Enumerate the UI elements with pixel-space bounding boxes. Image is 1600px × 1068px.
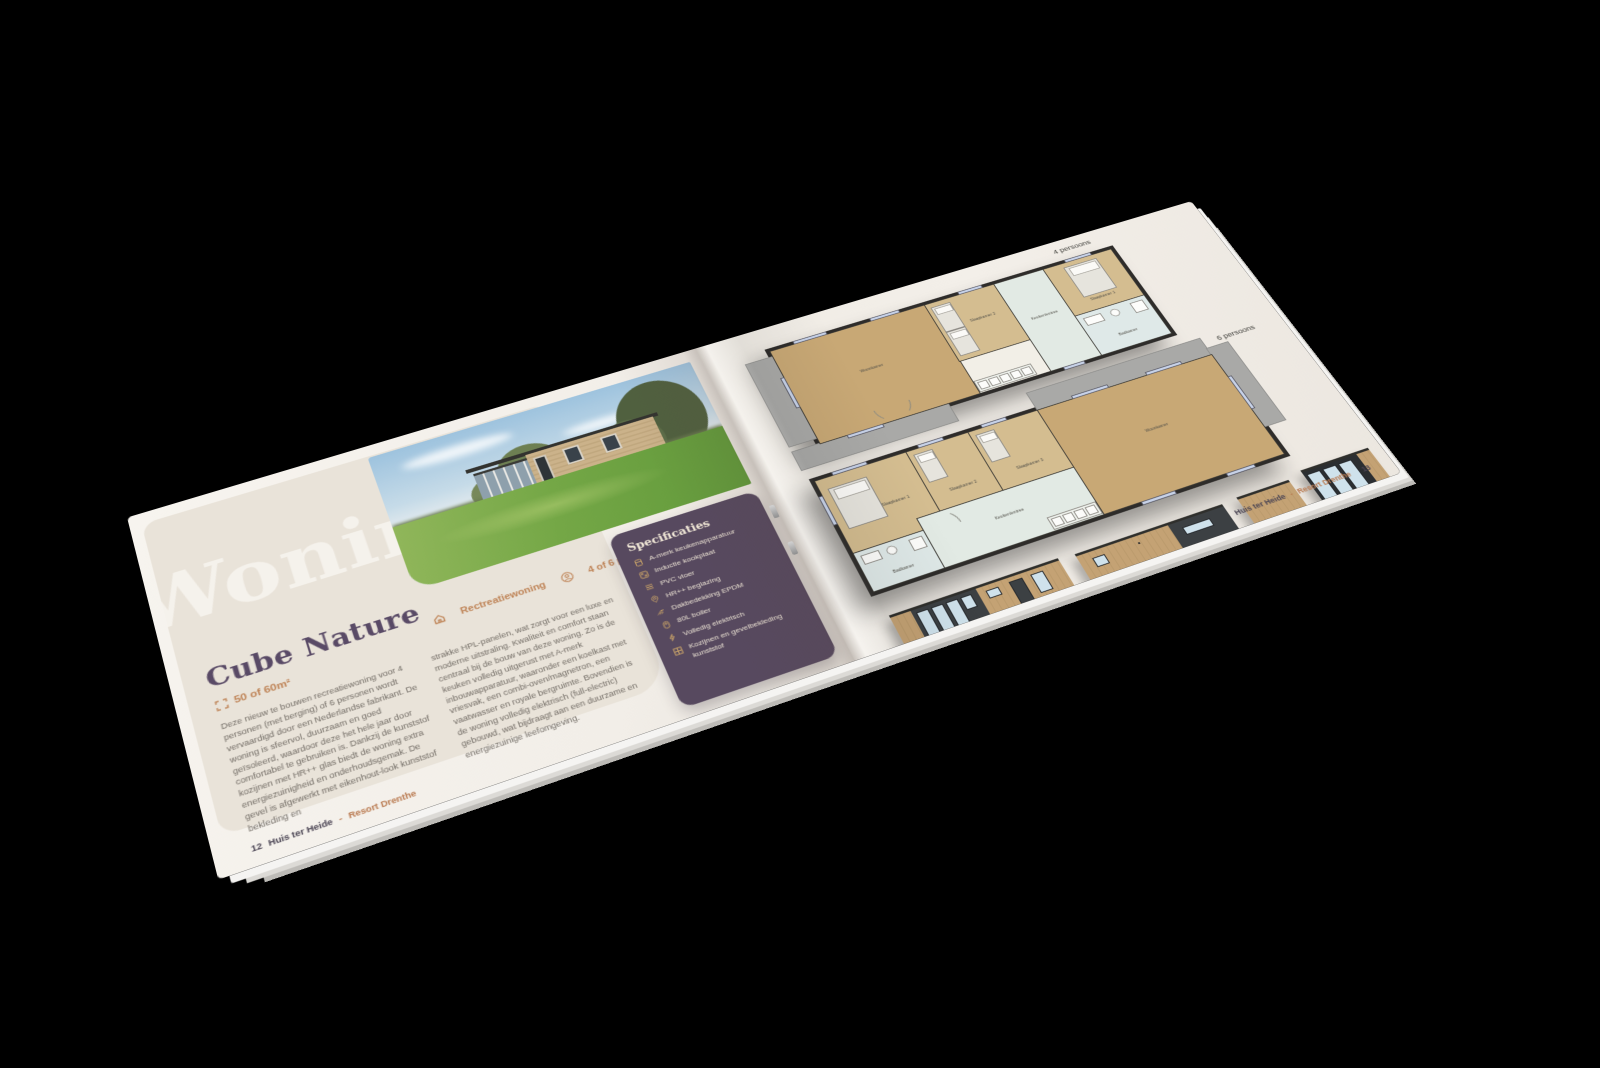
shower bbox=[908, 536, 928, 552]
left-footer: 12 Huis ter Heide - Resort Drenthe bbox=[250, 788, 417, 853]
body-column-1: Deze nieuw te bouwen recreatiewoning voo… bbox=[220, 659, 451, 836]
specifications-list: A-merk keukenapparatuur Inductie kookpla… bbox=[633, 520, 809, 666]
window-frame-icon bbox=[672, 646, 684, 656]
toilet bbox=[1108, 308, 1121, 317]
page-number: 12 bbox=[250, 841, 263, 854]
body-text: Deze nieuw te bouwen recreatiewoning voo… bbox=[220, 594, 659, 836]
pvc-floor-icon bbox=[644, 582, 656, 592]
facade-dark-section bbox=[1168, 506, 1243, 554]
sink bbox=[1083, 313, 1106, 326]
spec-item: 80L boiler bbox=[660, 580, 791, 631]
body-column-2: strakke HPL-panelen, wat zorgt voor een … bbox=[430, 594, 659, 762]
spec-item: Inductie kookplaat bbox=[638, 532, 767, 581]
footer-brand: Huis ter Heide bbox=[1233, 492, 1288, 516]
glazing-icon bbox=[649, 595, 661, 605]
elevation-rear-wood bbox=[1075, 504, 1243, 586]
kitchen-appliances-icon bbox=[633, 558, 644, 567]
footer-separator: - bbox=[1288, 490, 1296, 498]
meta-row: Rectreatiewoning 4 of 6 persoons bbox=[431, 542, 663, 625]
facade-wood-panel bbox=[890, 611, 928, 650]
house-icon bbox=[431, 612, 446, 625]
facade-wood-section bbox=[976, 560, 1079, 620]
window bbox=[818, 496, 838, 526]
spec-item: Volledig elektrisch bbox=[666, 593, 798, 644]
right-page: 4 persoons Woonkamer Slaapkamer 2 bbox=[695, 201, 1402, 661]
toilet bbox=[885, 545, 899, 556]
spec-item: Kozijnen en gevelbekleding kunststof bbox=[672, 605, 809, 665]
meta-persons: 4 of 6 persoons bbox=[586, 543, 663, 575]
open-pages: Woningen bbox=[127, 201, 1401, 880]
elevation-front-glass bbox=[889, 558, 1078, 650]
shower bbox=[1129, 299, 1149, 313]
brochure-spread: Woningen bbox=[127, 201, 1401, 880]
sink bbox=[860, 550, 883, 565]
facade-wood-section bbox=[1076, 525, 1187, 586]
dimensions-icon bbox=[214, 698, 229, 712]
kitchen-appliances bbox=[975, 364, 1037, 391]
kitchen-appliances bbox=[1048, 502, 1102, 529]
persons-icon bbox=[559, 570, 575, 584]
footer-separator: - bbox=[338, 814, 344, 824]
specifications-title: Specificaties bbox=[625, 503, 754, 554]
footer-brand: Huis ter Heide bbox=[267, 817, 334, 848]
boiler-icon bbox=[661, 620, 673, 630]
spec-item: A-merk keukenapparatuur bbox=[633, 520, 762, 568]
door-swing bbox=[935, 507, 961, 527]
spec-item: HR++ beglazing bbox=[649, 556, 779, 606]
spec-item: PVC vloer bbox=[644, 544, 774, 593]
room-badkamer: Badkamer bbox=[854, 530, 945, 591]
page-title: Cube Nature bbox=[203, 599, 424, 694]
meta-size: 50 of 60m² bbox=[233, 678, 292, 706]
induction-cooktop-icon bbox=[638, 570, 650, 580]
spec-item: Dakbedekking EPDM bbox=[655, 568, 786, 618]
facade-glass-section bbox=[911, 589, 994, 643]
footer-resort: Resort Drenthe bbox=[347, 788, 417, 820]
plan-label-6-persons: 6 persoons bbox=[1215, 324, 1257, 343]
meta-type: Rectreatiewoning bbox=[459, 580, 547, 616]
house-photo bbox=[368, 362, 752, 590]
meta-size-row: 50 of 60m² bbox=[214, 678, 292, 712]
scene: Woningen bbox=[0, 0, 1600, 1068]
specifications-card: Specificaties A-merk keukenapparatuur In… bbox=[608, 491, 839, 709]
double-bed bbox=[827, 477, 888, 530]
electric-icon bbox=[666, 633, 678, 643]
roofing-icon bbox=[655, 607, 667, 617]
